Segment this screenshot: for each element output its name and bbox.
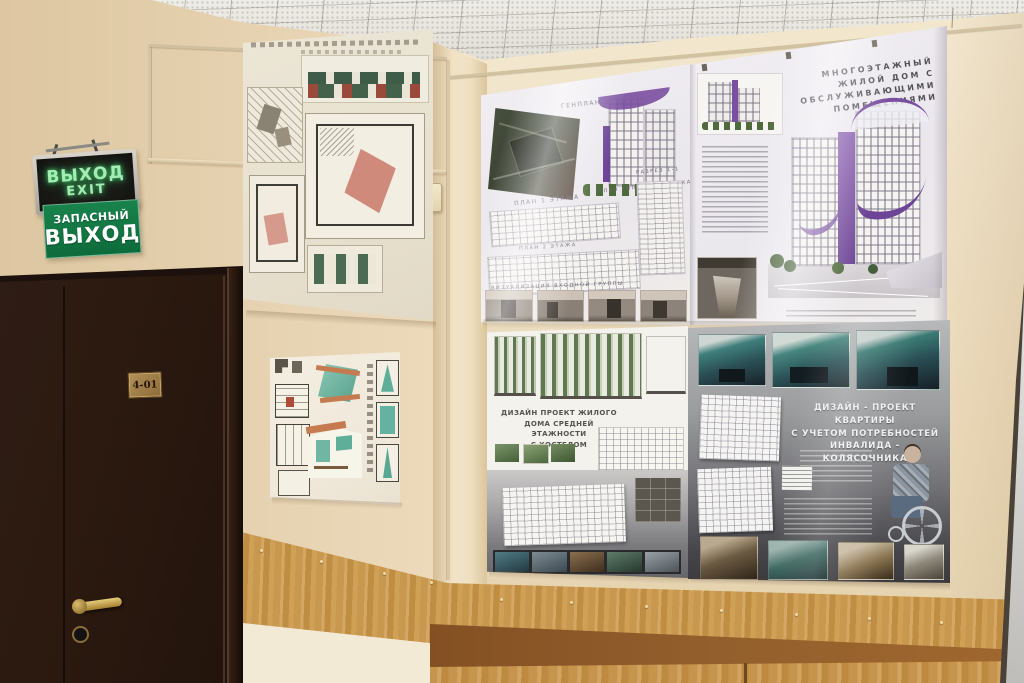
screw <box>430 581 433 584</box>
emergency-exit-sign: ЗАПАСНЫЙ ВЫХОД <box>42 199 141 259</box>
facade-elevation <box>646 336 686 394</box>
screw <box>570 601 573 604</box>
door-jamb <box>227 268 243 683</box>
cottage-axon-top <box>314 360 364 408</box>
door-room-number: 4-01 <box>132 379 157 391</box>
glare <box>690 26 947 325</box>
screw <box>260 549 263 552</box>
exit-sign-text-en: EXIT <box>66 183 108 200</box>
window-elevation <box>376 360 399 396</box>
render-cell <box>532 552 566 572</box>
render-thumbnail-grid <box>635 478 681 522</box>
facade-elevation <box>540 333 642 399</box>
screw <box>795 613 798 616</box>
cabinet-seam <box>744 663 747 683</box>
render-cell <box>607 552 641 572</box>
facade-elevation <box>494 336 536 396</box>
screw <box>500 598 503 601</box>
screw <box>645 605 648 608</box>
emergency-sign-line2: ВЫХОД <box>44 221 141 249</box>
elevation-strip <box>301 55 429 103</box>
cottage-perspective <box>306 418 364 482</box>
screw <box>940 621 943 624</box>
poster-multistorey-right-panel: МНОГОЭТАЖНЫЙ ЖИЛОЙ ДОМ С ОБСЛУЖИВАЮЩИМИ … <box>690 26 947 325</box>
elevation-band <box>308 72 420 84</box>
green-doors <box>314 254 376 284</box>
elevation-small <box>307 245 383 293</box>
cottage-balcony <box>314 466 348 469</box>
door-edge-highlight <box>223 276 225 683</box>
hand-title-line <box>301 50 401 54</box>
window-elevation <box>376 444 399 482</box>
glare <box>481 64 690 325</box>
mini-facade-pic <box>551 444 575 462</box>
room-photo: 4-01 ВЫХОД EXIT ЗАПАСНЫЙ ВЫХОД <box>0 0 1024 683</box>
plan-hatch <box>320 128 354 156</box>
mini-plan <box>275 384 309 418</box>
poster-hostel: ДИЗАЙН ПРОЕКТ ЖИЛОГО ДОМА СРЕДНЕЙ ЭТАЖНО… <box>487 326 688 578</box>
glare <box>688 320 950 583</box>
plan-grid <box>599 428 683 470</box>
window-teal-rect <box>380 406 395 434</box>
door-leaf[interactable] <box>0 274 226 683</box>
floor-plan-small <box>249 175 305 273</box>
render-cell <box>645 552 679 572</box>
conduit-corner-vertical <box>447 60 450 580</box>
mini-facade-pic <box>495 444 519 462</box>
door-leaf-seam <box>63 286 65 683</box>
poster-hand-drawn-large <box>243 29 433 321</box>
hand-title-line <box>251 40 419 48</box>
site-plan-sketch <box>247 87 303 163</box>
plan-red-mark <box>286 397 294 407</box>
stamp-sketch <box>275 359 288 373</box>
screw <box>383 572 386 575</box>
poster-multistorey-left-panel: ГЕНПЛАН ПЛАН 1 ЭТАЖА ПЛАН ТИПОВОГО ЭТАЖА… <box>481 64 690 325</box>
render-cell <box>570 552 604 572</box>
poster-apartment: ДИЗАЙН - ПРОЕКТ КВАРТИРЫ С УЧЕТОМ ПОТРЕБ… <box>688 320 950 583</box>
site-plan-block <box>274 127 291 148</box>
render-cell <box>495 552 529 572</box>
mini-facade-pic <box>523 444 549 464</box>
floor-plan-large <box>305 113 425 239</box>
door-room-plate: 4-01 <box>128 371 163 398</box>
edge-curl-shade <box>933 26 947 325</box>
stamp-sketch <box>292 361 302 373</box>
poster-cottage-small <box>270 352 400 505</box>
vertical-caption-strip <box>367 364 373 474</box>
door-handle-rosette <box>72 599 87 614</box>
corner-pilaster <box>433 42 487 590</box>
window-elevation <box>376 402 399 438</box>
cottage-window-teal <box>336 435 352 451</box>
hostel-gray-zone <box>487 470 688 578</box>
elevation-band <box>308 84 420 98</box>
door-lock-cylinder[interactable] <box>74 628 87 641</box>
window-teal-arch <box>379 363 396 393</box>
white-floor-plan <box>502 484 626 546</box>
screw <box>720 609 723 612</box>
title-line: ДИЗАЙН ПРОЕКТ ЖИЛОГО <box>497 408 621 419</box>
conduit-vertical-left <box>148 44 151 164</box>
mini-plan <box>276 424 310 466</box>
window-teal-spire <box>380 447 395 478</box>
dark-render-strip <box>493 550 681 574</box>
screw <box>868 617 871 620</box>
cottage-window-teal <box>316 440 330 462</box>
screw <box>320 560 323 563</box>
